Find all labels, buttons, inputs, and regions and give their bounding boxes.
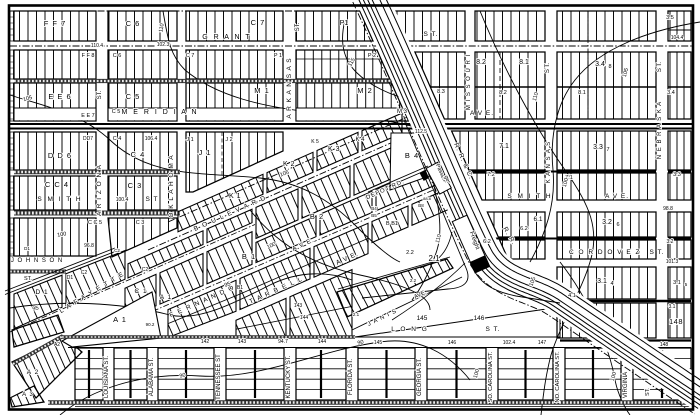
svg-text:3.3: 3.3 [593, 144, 603, 151]
svg-text:B 1: B 1 [242, 252, 256, 261]
svg-text:B4: B4 [371, 206, 377, 211]
svg-text:3.1: 3.1 [673, 280, 681, 286]
svg-text:C2: C2 [81, 270, 88, 276]
svg-text:2.1: 2.1 [353, 312, 360, 317]
svg-text:8.1: 8.1 [578, 90, 586, 96]
svg-text:ST.: ST. [295, 22, 301, 31]
svg-text:M E R I D I A N: M E R I D I A N [121, 109, 198, 116]
svg-text:4.1: 4.1 [568, 293, 576, 299]
svg-text:C2: C2 [114, 248, 120, 253]
svg-text:96.8: 96.8 [84, 243, 94, 249]
svg-text:145: 145 [417, 315, 428, 322]
svg-text:N E B R A S K A: N E B R A S K A [657, 101, 663, 159]
svg-text:144: 144 [318, 339, 327, 345]
svg-text:C 3: C 3 [128, 181, 143, 190]
svg-text:S T: S T [146, 196, 159, 203]
svg-text:6: 6 [616, 222, 619, 228]
svg-text:J 1: J 1 [186, 137, 193, 143]
svg-text:C 6: C 6 [113, 53, 122, 59]
svg-text:GEORGIA ST.: GEORGIA ST. [417, 358, 423, 396]
svg-text:101.3: 101.3 [666, 259, 679, 265]
svg-text:C O R D O V E Z: C O R D O V E Z [569, 249, 641, 256]
svg-text:142: 142 [201, 339, 210, 345]
svg-text:8.1: 8.1 [519, 59, 529, 66]
svg-text:8.2: 8.2 [476, 59, 486, 66]
svg-text:S T.: S T. [545, 63, 551, 74]
svg-text:112.5: 112.5 [415, 129, 427, 135]
svg-text:102.4: 102.4 [503, 340, 516, 346]
svg-text:C C 5: C C 5 [88, 220, 102, 226]
svg-text:7: 7 [606, 147, 609, 153]
svg-text:ALABAMA ST.: ALABAMA ST. [149, 357, 155, 396]
svg-text:C 7: C 7 [186, 53, 195, 59]
svg-text:8: 8 [608, 64, 611, 70]
svg-text:DD7: DD7 [83, 136, 93, 142]
svg-text:B B1: B B1 [386, 221, 398, 227]
svg-text:TENNESSEE ST: TENNESSEE ST [216, 354, 222, 400]
svg-text:P1: P1 [340, 20, 349, 27]
svg-text:106.4: 106.4 [145, 136, 158, 142]
svg-text:6.2: 6.2 [483, 239, 491, 245]
svg-text:C 4: C 4 [131, 150, 146, 159]
svg-text:K 3: K 3 [328, 146, 340, 153]
svg-text:A V E.: A V E. [605, 193, 629, 200]
svg-text:M 3: M 3 [397, 109, 408, 115]
svg-text:143: 143 [294, 303, 303, 309]
svg-text:E E 7: E E 7 [81, 113, 94, 119]
svg-text:3.2: 3.2 [667, 239, 674, 245]
svg-text:B5: B5 [371, 213, 377, 218]
svg-text:100.4: 100.4 [116, 197, 129, 203]
svg-text:90.2: 90.2 [146, 322, 155, 327]
svg-text:A2: A2 [54, 342, 60, 348]
svg-text:FLORIDA ST.: FLORIDA ST. [348, 359, 354, 395]
svg-text:6.1: 6.1 [533, 216, 542, 223]
svg-text:J 1: J 1 [198, 148, 211, 157]
svg-text:C2: C2 [142, 267, 149, 273]
svg-text:8.2: 8.2 [499, 90, 507, 96]
svg-text:88.8: 88.8 [423, 196, 432, 201]
svg-text:3.4: 3.4 [595, 61, 605, 68]
svg-text:S T.: S T. [657, 62, 663, 73]
svg-text:6.2: 6.2 [520, 226, 528, 232]
svg-text:S T.: S T. [649, 249, 664, 256]
svg-text:S T.: S T. [423, 31, 438, 38]
svg-text:L O N G: L O N G [391, 326, 429, 333]
svg-text:C 3: C 3 [136, 220, 145, 226]
svg-text:K A N S A S: K A N S A S [546, 141, 552, 183]
svg-text:P 2: P 2 [368, 53, 376, 59]
svg-text:C 4: C 4 [113, 136, 122, 142]
svg-text:143: 143 [238, 339, 247, 345]
svg-text:A 1: A 1 [160, 294, 172, 301]
svg-text:C C 4: C C 4 [45, 180, 69, 189]
svg-text:F F 8: F F 8 [82, 53, 95, 59]
svg-text:S T.: S T. [485, 326, 500, 333]
svg-text:NO. CAROLINA ST.: NO. CAROLINA ST. [555, 351, 561, 403]
svg-text:M 1: M 1 [254, 86, 270, 95]
svg-text:C 7: C 7 [251, 18, 266, 27]
svg-text:KENTUCKY ST.: KENTUCKY ST. [286, 355, 292, 398]
svg-text:S M I T H: S M I T H [37, 196, 82, 203]
svg-text:102.3: 102.3 [157, 42, 170, 48]
svg-text:O K L A H O M A: O K L A H O M A [168, 154, 175, 217]
svg-text:3.1: 3.1 [669, 304, 676, 310]
svg-text:C 5: C 5 [126, 92, 141, 101]
svg-text:D1: D1 [67, 275, 74, 281]
svg-text:A 2: A 2 [27, 369, 39, 376]
svg-text:K 4: K 4 [355, 137, 365, 143]
svg-text:ST.: ST. [24, 276, 32, 282]
svg-text:P 1: P 1 [274, 53, 282, 59]
svg-text:3.5: 3.5 [666, 15, 674, 21]
svg-text:146: 146 [474, 315, 485, 322]
svg-text:98.8: 98.8 [663, 206, 673, 212]
svg-text:94.7: 94.7 [278, 339, 288, 345]
svg-text:D D 6: D D 6 [48, 151, 72, 160]
svg-text:148: 148 [669, 317, 683, 326]
svg-text:146: 146 [448, 340, 457, 346]
svg-text:3.2: 3.2 [602, 219, 612, 226]
svg-text:C 6: C 6 [126, 19, 141, 28]
svg-text:ST.: ST. [645, 388, 651, 396]
svg-text:D1: D1 [24, 246, 30, 251]
svg-text:3.4: 3.4 [667, 90, 675, 96]
svg-text:ST.: ST. [97, 90, 103, 99]
svg-text:B8: B8 [418, 203, 424, 208]
svg-text:B1: B1 [237, 285, 243, 291]
svg-text:2.2: 2.2 [406, 250, 414, 256]
svg-text:144: 144 [300, 315, 309, 321]
svg-text:A R I Z O N A: A R I Z O N A [96, 164, 103, 216]
svg-text:K 1: K 1 [229, 193, 241, 200]
svg-text:VIRGINIA: VIRGINIA [623, 372, 629, 398]
svg-text:A R K A N S A S: A R K A N S A S [286, 57, 293, 118]
svg-text:104.4: 104.4 [671, 35, 684, 41]
svg-text:148: 148 [660, 342, 669, 348]
svg-text:M I S S O U R I: M I S S O U R I [466, 54, 472, 110]
svg-text:7.1: 7.1 [499, 143, 509, 150]
svg-text:2.2: 2.2 [410, 278, 417, 283]
svg-text:4: 4 [610, 281, 613, 287]
svg-text:B 4: B 4 [405, 151, 419, 160]
svg-text:M 2: M 2 [357, 86, 373, 95]
svg-text:G R A N T: G R A N T [202, 34, 251, 41]
svg-text:D 1: D 1 [35, 289, 48, 296]
svg-text:147: 147 [538, 340, 547, 346]
svg-text:K 2: K 2 [283, 161, 295, 168]
svg-text:145: 145 [374, 340, 383, 346]
svg-text:J O H N S O N: J O H N S O N [11, 258, 63, 264]
svg-text:3.1: 3.1 [597, 278, 607, 285]
svg-text:F F 7: F F 7 [44, 19, 67, 28]
svg-text:K 5: K 5 [311, 139, 319, 145]
svg-text:8.3: 8.3 [437, 89, 445, 95]
svg-text:3.3: 3.3 [673, 172, 681, 178]
svg-text:S M I T H: S M I T H [507, 193, 552, 200]
svg-text:B 2: B 2 [310, 212, 324, 221]
svg-text:LOUISIANA ST.: LOUISIANA ST. [104, 356, 110, 398]
svg-text:J 2: J 2 [225, 137, 232, 143]
svg-text:110.4: 110.4 [91, 43, 103, 49]
svg-text:A 3: A 3 [22, 392, 34, 398]
svg-text:A 1: A 1 [113, 315, 127, 324]
svg-text:A V E.: A V E. [470, 110, 494, 117]
svg-text:7.2: 7.2 [487, 172, 495, 178]
svg-text:C 5: C 5 [112, 109, 121, 115]
svg-text:SO. CAROLINA ST.: SO. CAROLINA ST. [488, 351, 494, 402]
svg-text:E E 6: E E 6 [48, 92, 71, 101]
svg-text:2.1: 2.1 [428, 254, 440, 263]
svg-text:C 1: C 1 [134, 288, 147, 295]
